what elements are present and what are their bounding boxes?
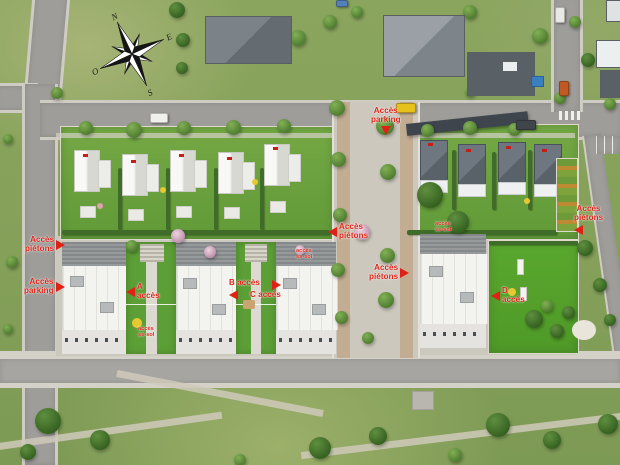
arrow-right-icon <box>400 268 409 278</box>
label-acces-parking-top: Accèsparking <box>371 107 401 135</box>
decor: accès <box>137 292 160 301</box>
label-text: Daccès <box>502 287 525 305</box>
label-acces-ss-sol-1: accèsss-sol <box>138 326 155 338</box>
site-plan-canvas: N E S O AccèsparkingAccèspiétonsAccèspar… <box>0 0 620 465</box>
decor: piétons <box>369 273 398 282</box>
arrow-left-icon <box>491 291 500 301</box>
label-text: Accèspiétons <box>574 205 603 223</box>
decor: C accès <box>250 291 281 300</box>
label-text: Accèspiétons <box>339 223 368 241</box>
label-text: Accèspiétons <box>25 236 54 254</box>
arrow-left-icon <box>229 290 238 300</box>
arrow-right-icon <box>56 282 65 292</box>
label-acces-hall-a: Aaccès <box>126 283 160 301</box>
label-text: accèsss-sol <box>296 248 313 260</box>
label-text: Aaccès <box>137 283 160 301</box>
label-acces-ss-sol-3: accèsss-sol <box>435 221 452 233</box>
decor: piétons <box>339 232 368 241</box>
decor: piétons <box>25 245 54 254</box>
arrow-right-icon <box>272 280 281 290</box>
arrow-down-icon <box>381 126 391 135</box>
label-acces-hall-c: C accès <box>250 280 281 300</box>
decor: parking <box>371 116 401 125</box>
label-acces-ss-sol-2: accèsss-sol <box>296 248 313 260</box>
decor: parking <box>24 287 54 296</box>
decor: piétons <box>574 214 603 223</box>
decor: ss-sol <box>296 254 313 260</box>
labels-layer: AccèsparkingAccèspiétonsAccèsparkingAccè… <box>0 0 620 465</box>
label-acces-pietons-mid-right: Accèspiétons <box>369 264 409 282</box>
arrow-right-icon <box>56 240 65 250</box>
label-text: Accèsparking <box>371 107 401 125</box>
label-acces-pietons-mid-left: Accèspiétons <box>328 223 368 241</box>
arrow-left-icon <box>574 225 583 235</box>
label-acces-hall-d: Daccès <box>491 287 525 305</box>
label-acces-pietons-right: Accèspiétons <box>574 205 603 235</box>
label-acces-parking-left: Accèsparking <box>24 278 65 296</box>
label-text: accèsss-sol <box>138 326 155 338</box>
label-text: accèsss-sol <box>435 221 452 233</box>
decor: accès <box>502 296 525 305</box>
label-text: Accèsparking <box>24 278 54 296</box>
label-text: C accès <box>250 291 281 300</box>
arrow-left-icon <box>126 287 135 297</box>
label-text: Accèspiétons <box>369 264 398 282</box>
decor: ss-sol <box>435 227 452 233</box>
decor: ss-sol <box>138 332 155 338</box>
arrow-left-icon <box>328 227 337 237</box>
label-acces-pietons-left: Accèspiétons <box>25 236 65 254</box>
